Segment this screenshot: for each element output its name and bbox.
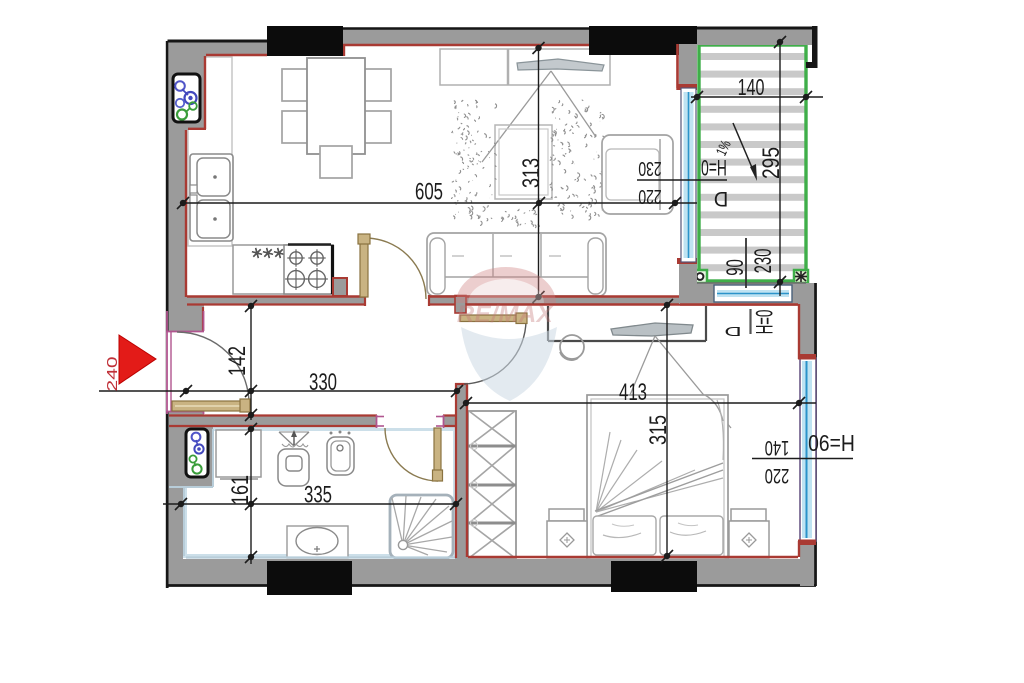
svg-text:D: D [714, 187, 728, 211]
svg-text:220: 220 [638, 185, 661, 208]
svg-text:315: 315 [646, 415, 672, 445]
svg-text:RE/MAX: RE/MAX [457, 301, 555, 328]
svg-text:140: 140 [738, 75, 765, 100]
svg-text:161: 161 [228, 475, 254, 505]
svg-text:330: 330 [309, 369, 337, 396]
svg-text:295: 295 [757, 147, 785, 179]
svg-text:413: 413 [619, 379, 647, 406]
svg-text:D: D [724, 324, 741, 338]
svg-text:335: 335 [304, 482, 332, 509]
svg-text:140: 140 [765, 436, 790, 459]
svg-text:H=90: H=90 [808, 430, 855, 455]
svg-text:230: 230 [751, 249, 777, 274]
svg-text:H=0: H=0 [701, 155, 727, 180]
svg-text:90: 90 [723, 259, 749, 276]
svg-text:142: 142 [225, 346, 251, 376]
svg-text:H=0: H=0 [751, 310, 778, 335]
svg-text:240: 240 [104, 356, 120, 391]
svg-text:313: 313 [519, 158, 545, 188]
svg-text:230: 230 [638, 157, 661, 180]
svg-text:220: 220 [765, 464, 790, 487]
svg-text:605: 605 [415, 179, 443, 206]
